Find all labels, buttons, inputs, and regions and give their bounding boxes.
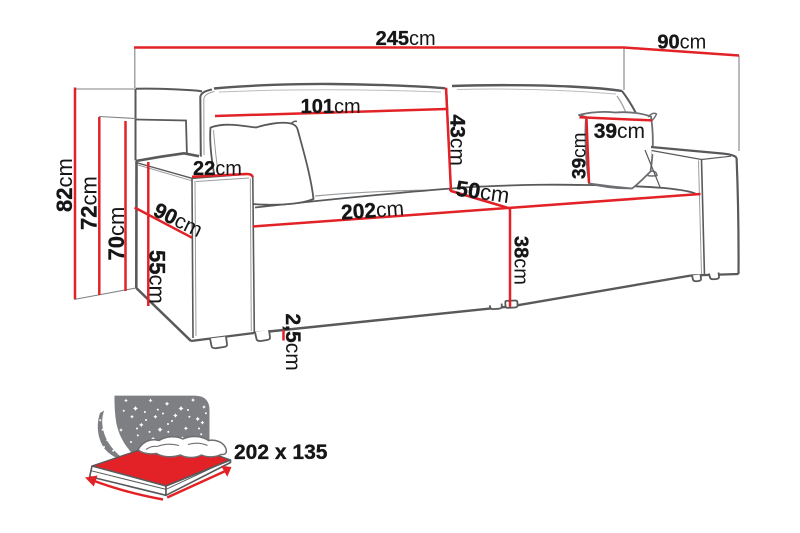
svg-text:70cm: 70cm	[104, 207, 129, 261]
svg-text:43cm: 43cm	[446, 115, 469, 166]
svg-text:2,5cm: 2,5cm	[281, 314, 304, 371]
svg-text:202cm: 202cm	[340, 197, 404, 224]
svg-text:202 x 135: 202 x 135	[234, 441, 328, 464]
svg-text:82cm: 82cm	[52, 158, 77, 212]
svg-text:245cm: 245cm	[376, 28, 436, 50]
svg-text:22cm: 22cm	[193, 158, 242, 180]
svg-text:101cm: 101cm	[301, 96, 361, 118]
svg-text:90cm: 90cm	[657, 32, 706, 54]
svg-text:39cm: 39cm	[570, 133, 591, 179]
svg-text:39cm: 39cm	[594, 120, 645, 143]
svg-text:55cm: 55cm	[145, 250, 170, 304]
svg-text:38cm: 38cm	[510, 236, 532, 285]
svg-text:72cm: 72cm	[77, 176, 102, 230]
